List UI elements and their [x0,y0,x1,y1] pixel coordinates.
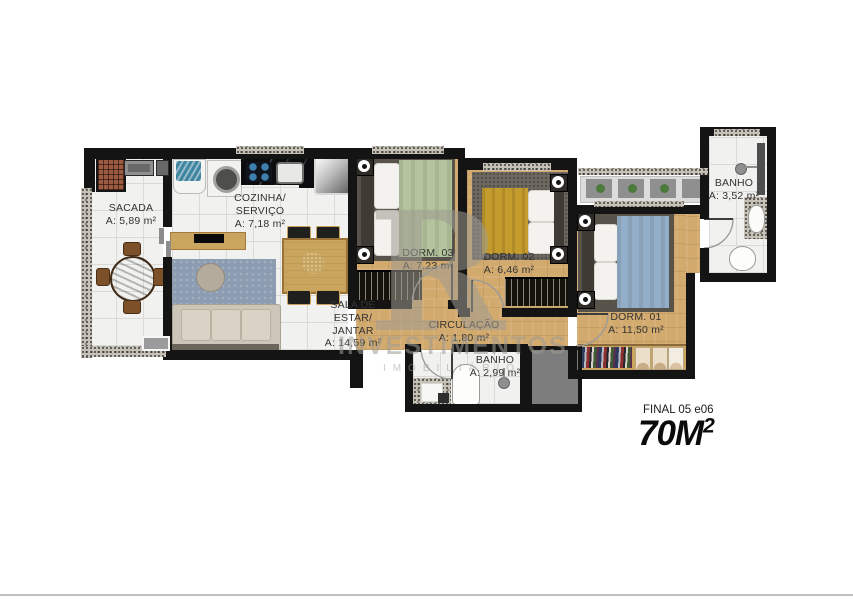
pouf [196,263,225,292]
page-bottom-rule [0,594,853,596]
toilet [729,246,756,271]
ac-unit [142,336,170,351]
window [483,163,551,171]
wall-segment [767,127,776,282]
wall-segment [163,350,361,360]
room-area: A: 6,46 m² [476,264,542,277]
wall-segment [405,344,421,352]
pillow [374,163,400,209]
washer-door [213,166,240,193]
room-name: BANHO [704,177,764,190]
room-name: SACADA [95,202,167,215]
planter-edge [594,201,684,207]
room-name: CIRCULAÇÃO [428,319,500,332]
balcony-cabinet [124,160,154,176]
room-name: DORM. 01 [601,311,671,324]
floorplan-page: SACADA A: 5,89 m² COZINHA/ SERVIÇO A: 7,… [0,0,853,600]
wall-segment [458,158,467,308]
label-dorm3: DORM. 03 A: 7,23 m² [394,247,462,273]
closet-panel [652,347,668,370]
room-name: COZINHA/ [223,192,297,205]
room-area: A: 2,99 m² [460,367,530,380]
kitchen-sink [276,162,304,184]
bathroom-sink [748,205,765,233]
lamp [579,215,591,227]
lamp [358,248,370,260]
shower-arm [745,166,757,168]
room-area: A: 3,52 m² [704,190,764,203]
shower-head [735,163,747,175]
room-area: A: 11,50 m² [601,324,671,337]
dining-chair [287,290,311,305]
label-circulacao: CIRCULAÇÃO A: 1,80 m² [428,319,500,345]
room-name: SERVIÇO [223,205,297,218]
pillow [594,262,618,300]
table-plant [302,252,324,274]
lamp [358,160,370,172]
sliding-door-pane [166,241,171,257]
room-name: BANHO [460,354,530,367]
wardrobe-dorm-03 [353,270,422,300]
window [714,129,760,136]
room-area: A: 14,59 m² [312,337,394,350]
plant-icon [628,184,637,193]
label-sacada: SACADA A: 5,89 m² [95,202,167,228]
unit-area-label: 70M2 [638,414,714,454]
wall-segment [405,404,579,412]
bed-dorm-03-headboard [361,163,374,254]
room-area: A: 7,23 m² [394,260,462,273]
lamp [552,176,564,188]
plant-icon [596,184,605,193]
room-area: A: 1,80 m² [428,332,500,345]
wardrobe-dorm-02 [505,277,570,306]
planter-edge [578,168,708,175]
wall-segment [502,308,577,317]
label-cozinha: COZINHA/ SERVIÇO A: 7,18 m² [223,192,297,230]
room-name: DORM. 02 [476,251,542,264]
area-value: 70M [638,414,703,453]
pillow [594,224,618,262]
label-dorm1: DORM. 01 A: 11,50 m² [601,311,671,337]
wall-segment [686,273,695,379]
area-superscript: 2 [703,414,714,437]
wall-segment [568,158,577,312]
round-table [110,256,156,302]
room-name: DORM. 03 [394,247,462,260]
wall-segment [350,350,363,388]
lamp [552,248,564,260]
label-banho-social: BANHO A: 2,99 m² [460,354,530,380]
wall-segment [452,344,528,352]
refrigerator [314,155,352,195]
cooktop [246,162,272,182]
barbecue-grill [96,158,126,192]
chair [123,242,141,256]
planter-panel [682,179,700,198]
wall-segment [348,148,357,300]
wall-segment [700,273,776,282]
closet-panel [668,347,684,370]
label-dorm2: DORM. 02 A: 6,46 m² [476,251,542,277]
wall-segment [405,344,413,412]
room-name: SALA DE ESTAR/ [312,299,394,325]
balcony-cabinet-small [156,160,169,176]
plant-icon [660,184,669,193]
bed-dorm-02-headboard [554,192,564,250]
window [372,146,444,154]
wall-segment [458,308,470,317]
wall-segment [568,346,577,379]
drain [438,393,449,403]
room-area: A: 5,89 m² [95,215,167,228]
balcony-wall [81,188,92,358]
chair [96,268,110,286]
dorm1-floor-strip [686,214,700,273]
room-name: JANTAR [312,325,394,338]
room-area: A: 7,18 m² [223,218,297,231]
wall-segment [568,370,695,379]
closet-clothes [582,347,632,368]
label-sala: SALA DE ESTAR/ JANTAR A: 14,59 m² [312,299,394,350]
window [236,146,304,154]
bed-dorm-02-blanket [482,188,528,254]
pillow [528,190,556,222]
tv [194,234,224,243]
chair [123,300,141,314]
closet-panel [635,347,651,370]
bed-dorm-03-blanket [399,160,452,257]
wall-segment [84,148,95,192]
sliding-door-pane [159,228,164,244]
tank-water [176,161,201,181]
bed-dorm-01-blanket [617,216,669,308]
label-banho-suite: BANHO A: 3,52 m² [704,177,764,203]
lamp [579,293,591,305]
sofa-cushion [241,309,271,341]
sofa-cushion [211,309,241,341]
sofa-cushion [181,309,211,341]
